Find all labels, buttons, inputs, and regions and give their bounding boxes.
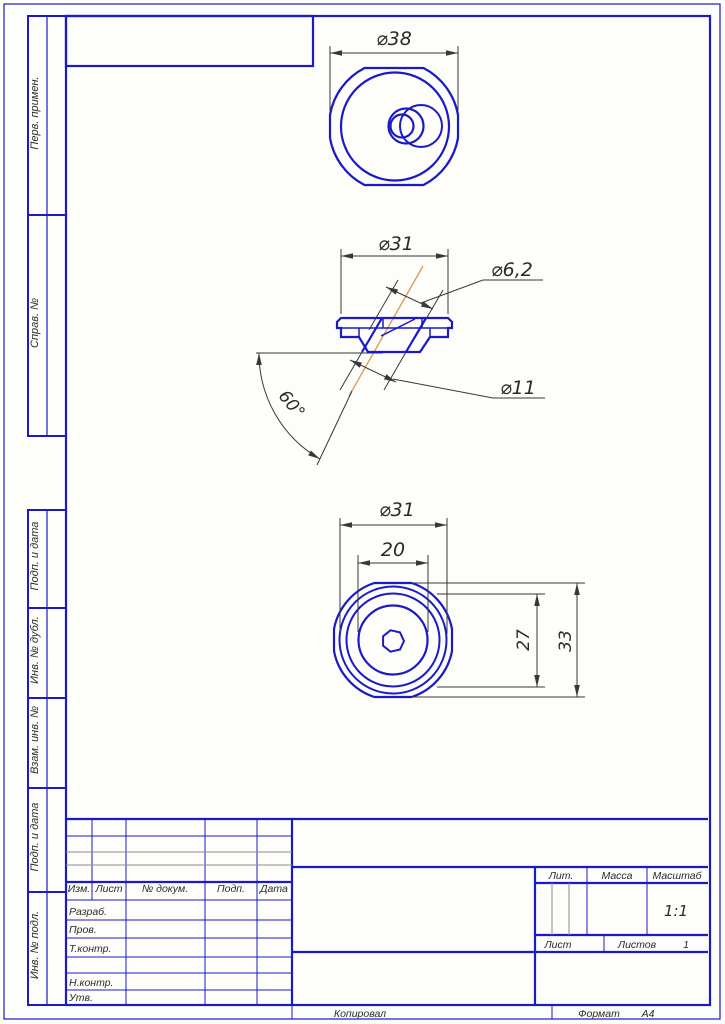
row-tkontr: Т.контр. [69, 943, 111, 955]
col-list: Лист [94, 883, 122, 895]
bottom-view: ⌀31 20 27 33 [334, 499, 585, 697]
dim-angle-60: 60° [274, 387, 309, 423]
center-hole [383, 630, 404, 651]
scale-label: Масштаб [652, 870, 702, 882]
col-data: Дата [259, 883, 288, 895]
footer-format-value: А4 [641, 1008, 655, 1020]
dim-33: 33 [556, 630, 576, 652]
dim-27: 27 [514, 629, 534, 651]
leader-d62 [421, 280, 543, 303]
dim-20: 20 [381, 539, 405, 561]
margin-labels: Перв. примен. Справ. № Подп. и дата Инв.… [29, 76, 41, 979]
dim-d31-bottom: ⌀31 [379, 499, 415, 521]
margin-inv-n-podl: Инв. № подл. [29, 911, 41, 979]
dim-d62: ⌀6,2 [491, 259, 533, 281]
margin-podp-i-data-1: Подп. и дата [29, 522, 41, 591]
ext-line [384, 352, 406, 390]
drawing-sheet: ⌀38 [0, 0, 725, 1024]
dim-d38: ⌀38 [376, 28, 412, 50]
lit-label: Лит. [548, 870, 574, 882]
circle-d27 [347, 594, 440, 687]
row-nkontr: Н.контр. [69, 977, 113, 989]
sheets-value: 1 [683, 939, 689, 951]
top-view-outline [330, 68, 458, 185]
col-izm: Изм. [68, 883, 90, 895]
dim-line-d11 [350, 360, 396, 382]
margin-inv-n-dubl: Инв. № дубл. [29, 616, 41, 684]
col-podp: Подп. [217, 883, 245, 895]
bottom-view-outline [334, 583, 452, 697]
row-utv: Утв. [68, 992, 93, 1004]
circle-d31 [340, 587, 447, 694]
axis-extension [317, 391, 352, 465]
margin-perv-primen: Перв. примен. [29, 76, 41, 149]
top-view-boss-circle [389, 109, 424, 144]
ext-line [340, 352, 362, 390]
title-block-grid [66, 819, 708, 1019]
top-view-boss-circle-2 [400, 105, 442, 147]
mass-label: Масса [601, 870, 632, 882]
drawing-canvas: ⌀38 [0, 0, 725, 1024]
section-outline [337, 318, 452, 352]
circle-d20 [359, 606, 428, 675]
row-prov: Пров. [69, 924, 97, 936]
sheet-label: Лист [543, 939, 571, 951]
top-view-inner-circle [341, 73, 449, 181]
margin-sprav-n: Справ. № [29, 298, 41, 348]
sheets-label: Листов [617, 939, 657, 951]
top-view: ⌀38 [330, 28, 458, 185]
margin-podp-i-data-2: Подп. и дата [29, 803, 41, 872]
footer-copied-by: Копировал [334, 1008, 386, 1020]
top-left-extra-box [66, 16, 313, 66]
title-block-labels: Изм. Лист № докум. Подп. Дата Разраб. Пр… [68, 870, 703, 1020]
dim-d31-section: ⌀31 [378, 233, 414, 255]
row-razrab: Разраб. [69, 906, 107, 918]
dim-d11: ⌀11 [500, 377, 536, 399]
centerline [349, 266, 423, 396]
section-view: ⌀31 ⌀6,2 ⌀11 60° [256, 233, 545, 465]
inclined-hole-edge [362, 318, 382, 352]
margin-vzam-inv-n: Взам. инв. № [29, 706, 41, 774]
footer-format-label: Формат [578, 1008, 620, 1020]
scale-value: 1:1 [664, 902, 688, 920]
col-ndokum: № докум. [142, 883, 188, 895]
